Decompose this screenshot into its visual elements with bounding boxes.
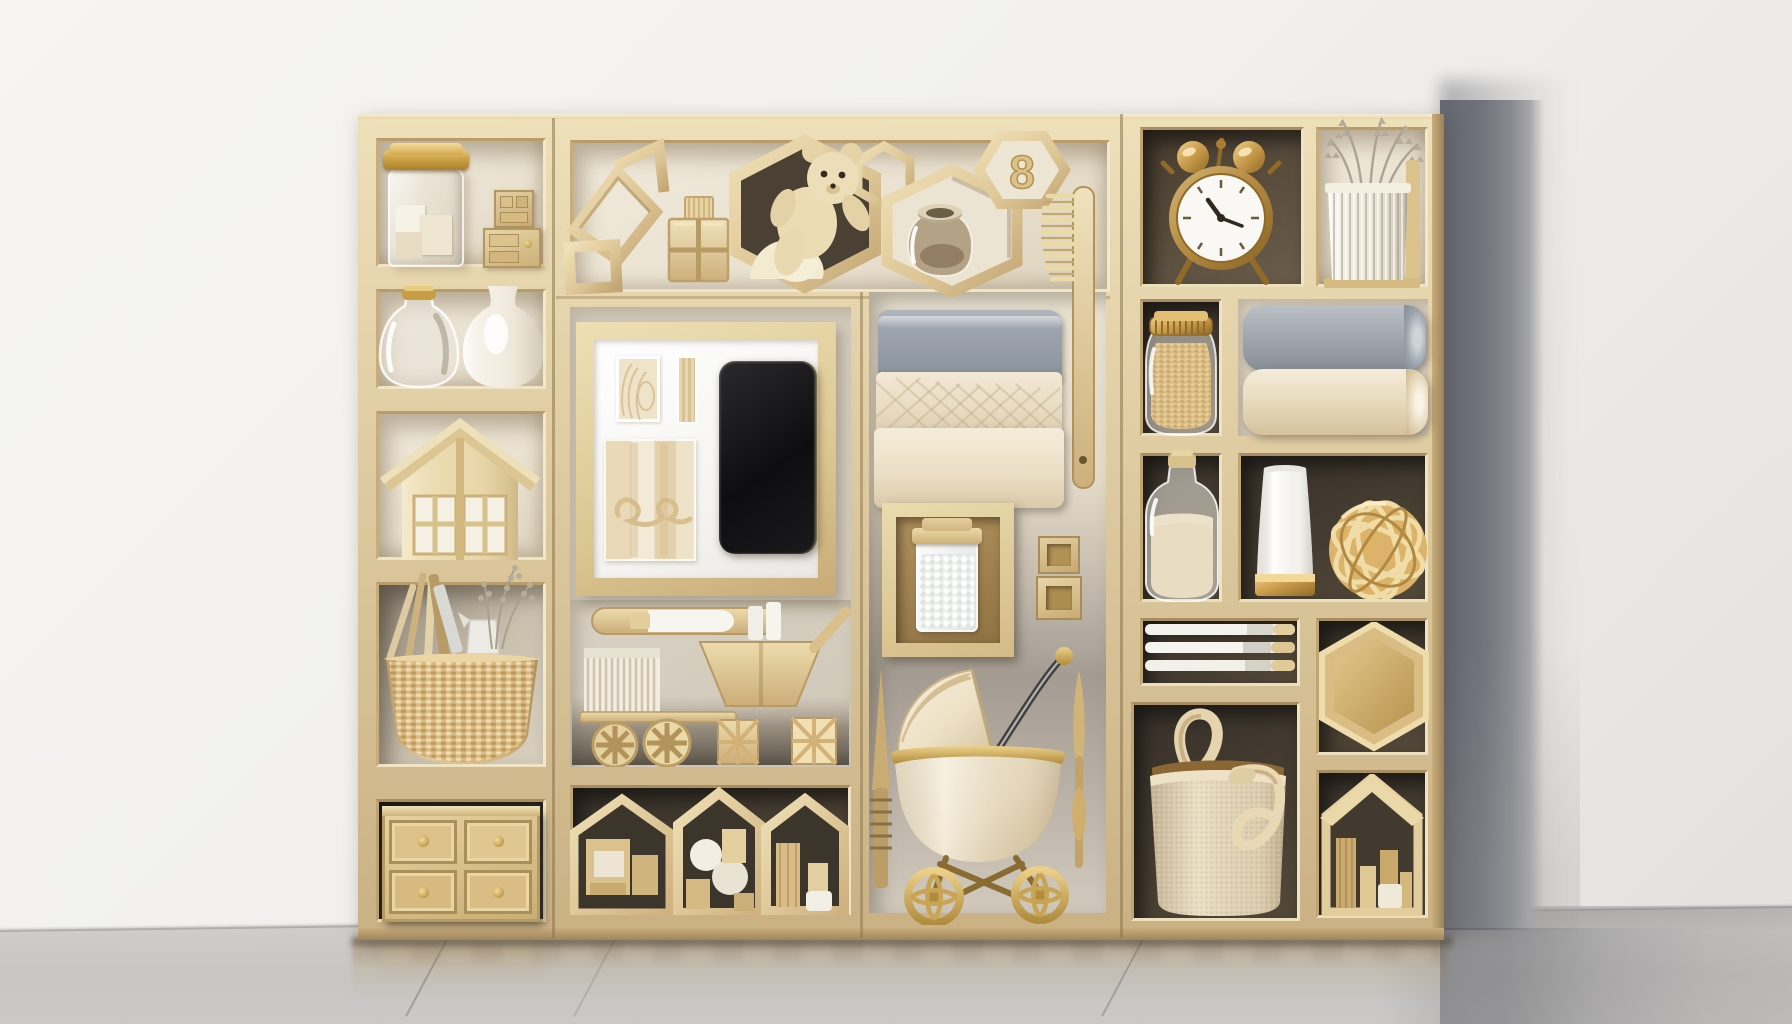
svg-text:8: 8 [1009, 146, 1035, 198]
